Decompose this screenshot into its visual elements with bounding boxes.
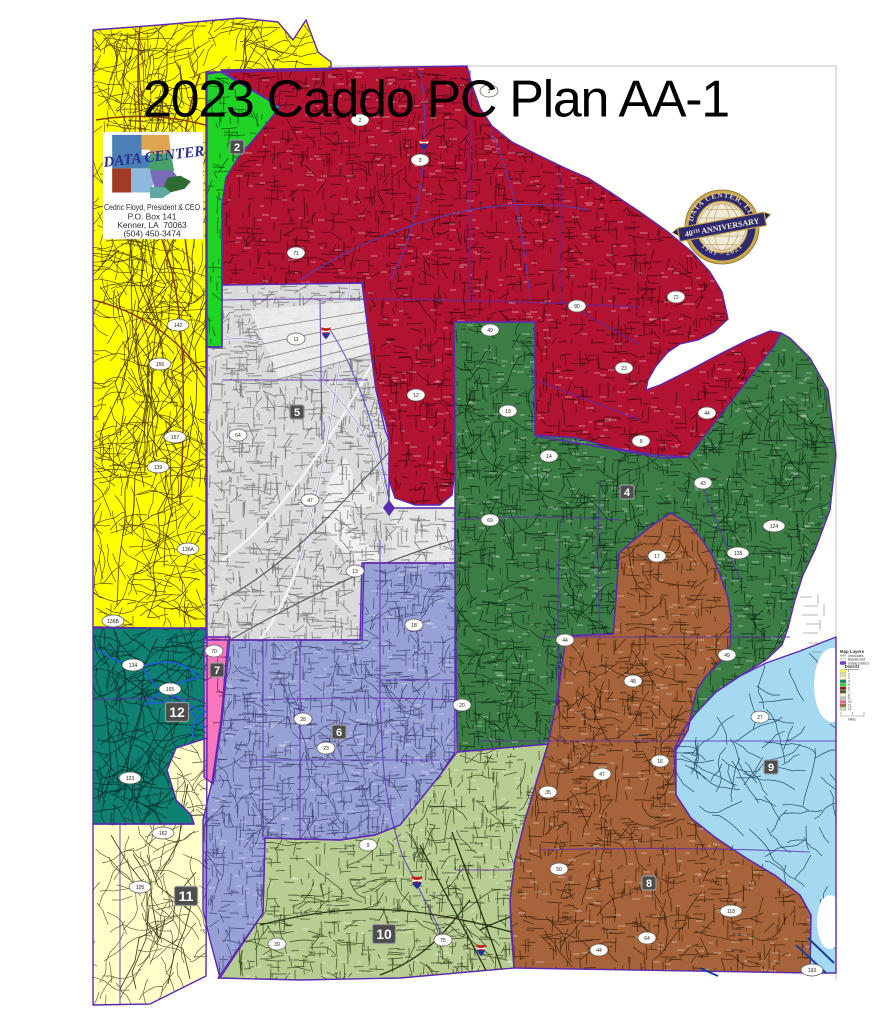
- svg-text:9: 9: [367, 843, 370, 849]
- svg-text:6: 6: [336, 727, 342, 739]
- svg-text:142: 142: [174, 323, 183, 329]
- svg-text:139: 139: [154, 465, 163, 471]
- svg-text:72: 72: [673, 295, 679, 301]
- svg-text:193: 193: [808, 968, 817, 974]
- svg-text:39: 39: [274, 942, 280, 948]
- svg-text:19: 19: [505, 409, 511, 415]
- svg-text:44: 44: [704, 411, 710, 417]
- svg-text:48: 48: [630, 679, 636, 685]
- svg-text:64: 64: [235, 433, 241, 439]
- svg-text:75: 75: [440, 938, 446, 944]
- svg-text:12: 12: [169, 704, 185, 720]
- svg-text:28: 28: [300, 717, 306, 723]
- svg-text:9: 9: [640, 439, 643, 445]
- svg-text:136B: 136B: [107, 619, 119, 625]
- svg-text:124: 124: [770, 524, 779, 530]
- svg-text:105: 105: [136, 885, 145, 891]
- svg-text:9: 9: [768, 762, 774, 774]
- svg-text:5: 5: [294, 407, 300, 419]
- svg-text:162: 162: [159, 831, 168, 837]
- svg-text:49: 49: [724, 653, 730, 659]
- svg-text:4: 4: [624, 487, 631, 499]
- svg-text:70: 70: [211, 649, 217, 655]
- svg-text:Miles: Miles: [848, 718, 856, 722]
- svg-text:157: 157: [171, 435, 180, 441]
- svg-text:136A: 136A: [182, 547, 194, 553]
- svg-text:69: 69: [487, 518, 493, 524]
- svg-text:23: 23: [621, 366, 627, 372]
- svg-text:27: 27: [757, 715, 763, 721]
- svg-text:80: 80: [574, 304, 580, 310]
- svg-text:123: 123: [126, 776, 135, 782]
- svg-text:20: 20: [459, 703, 465, 709]
- svg-text:23: 23: [323, 746, 329, 752]
- svg-text:35: 35: [545, 790, 551, 796]
- svg-text:44: 44: [562, 638, 568, 644]
- svg-text:64: 64: [644, 936, 650, 942]
- svg-text:8: 8: [646, 878, 652, 890]
- svg-text:3: 3: [419, 158, 422, 164]
- svg-text:2023 Caddo PC Plan AA-1: 2023 Caddo PC Plan AA-1: [143, 71, 729, 129]
- svg-text:47: 47: [599, 772, 605, 778]
- svg-text:47: 47: [307, 498, 313, 504]
- svg-text:128: 128: [734, 551, 743, 557]
- svg-text:14: 14: [546, 454, 552, 460]
- svg-text:18: 18: [411, 623, 417, 629]
- svg-text:17: 17: [654, 554, 660, 560]
- svg-text:156: 156: [156, 362, 165, 368]
- svg-text:43: 43: [700, 481, 706, 487]
- svg-text:13: 13: [352, 569, 358, 575]
- svg-text:11: 11: [293, 337, 298, 343]
- svg-text:44: 44: [596, 948, 602, 954]
- svg-text:165: 165: [166, 687, 175, 693]
- svg-text:118: 118: [727, 909, 735, 915]
- svg-text:71: 71: [293, 251, 299, 257]
- svg-text:Cedric Floyd, President & CEO: Cedric Floyd, President & CEO: [104, 202, 200, 212]
- svg-text:50: 50: [556, 867, 562, 873]
- svg-text:(504) 450-3474: (504) 450-3474: [123, 229, 181, 239]
- svg-text:11: 11: [179, 888, 194, 904]
- svg-text:49: 49: [487, 328, 493, 334]
- svg-text:16: 16: [657, 759, 663, 765]
- svg-text:12: 12: [848, 707, 852, 711]
- svg-text:12: 12: [413, 393, 419, 399]
- svg-text:2: 2: [234, 142, 240, 154]
- svg-text:7: 7: [214, 665, 220, 677]
- svg-text:10: 10: [376, 926, 392, 942]
- svg-text:134: 134: [129, 663, 138, 669]
